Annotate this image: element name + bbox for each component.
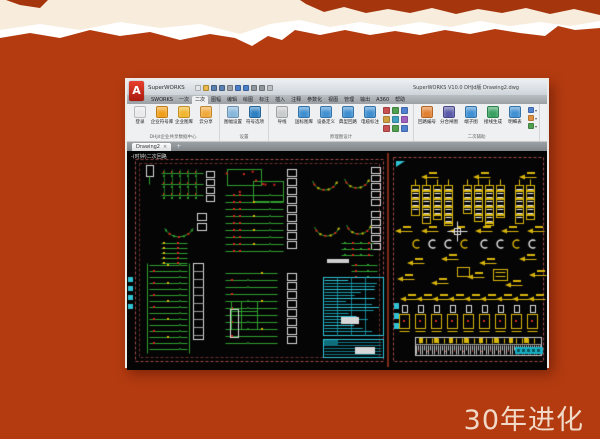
app-logo-button[interactable]: A [129, 81, 144, 101]
ribbon: 登录企业符号库企业图库云分享DHJd企业共享数据中心图幅设置符号选项设置导线国标… [127, 104, 547, 142]
mini-tool-grid [383, 107, 409, 133]
ribbon-button-电缆标注[interactable]: 电缆标注 [359, 105, 381, 125]
ribbon-tab-标注[interactable]: 标注 [256, 96, 272, 104]
ribbon-group-0: 登录企业符号库企业图库云分享DHJd企业共享数据中心 [127, 104, 220, 141]
wiring-icon [487, 106, 499, 118]
ribbon-button-企业符号库[interactable]: 企业符号库 [151, 105, 173, 125]
chevron-down-icon: ▾ [535, 108, 537, 113]
file-tab-bar: Drawing2 × + [127, 142, 547, 151]
chevron-down-icon: ▾ [535, 124, 537, 129]
new-file-icon[interactable] [195, 85, 201, 91]
ribbon-tab-视图[interactable]: 视图 [325, 96, 341, 104]
ribbon-button-label: 典型回路 [339, 119, 357, 125]
refresh-icon[interactable] [251, 85, 257, 91]
ribbon-button-label: 符号选项 [246, 119, 264, 125]
cable-tag-icon [364, 106, 376, 118]
ribbon-button-图幅设置[interactable]: 图幅设置 [222, 105, 244, 125]
device-grid-icon [320, 106, 332, 118]
copy-tool-icon[interactable] [392, 116, 399, 123]
mini-button-stack: ▾▾▾ [528, 107, 537, 129]
ribbon-button-label: 图幅设置 [224, 119, 242, 125]
ribbon-group-label: 设置 [222, 134, 266, 141]
ribbon-tab-row: SWORKS一次二次图幅编辑绘图标注插入注释参数化视图管理输出A360帮助 [127, 95, 547, 104]
check-mini-icon[interactable]: ▾ [528, 123, 537, 129]
export-mini-icon[interactable]: ▾ [528, 115, 537, 121]
ribbon-group-label: DHJd企业共享数据中心 [129, 134, 217, 141]
compass-icon [156, 106, 168, 118]
ribbon-button-label: 回路编号 [418, 119, 436, 125]
org-tree-icon [443, 106, 455, 118]
check-mini-icon [528, 123, 534, 129]
ribbon-button-导线[interactable]: 导线 [271, 105, 293, 125]
search-icon[interactable] [259, 85, 265, 91]
save-icon[interactable] [211, 85, 217, 91]
ribbon-button-label: 明细表 [508, 119, 522, 125]
ribbon-tab-绘图[interactable]: 绘图 [240, 96, 256, 104]
canvas-annotation: -(时钟)二次回路 [131, 153, 167, 160]
title-bar: A SuperWORKS SuperWORKS V10.0 DHJd版 Draw… [127, 80, 547, 95]
ribbon-button-label: 云分享 [199, 119, 213, 125]
file-tab-label: Drawing2 [136, 143, 160, 151]
align-tool-icon[interactable] [383, 116, 390, 123]
circuit-icon [342, 106, 354, 118]
ribbon-button-典型回路[interactable]: 典型回路 [337, 105, 359, 125]
folder-icon [178, 106, 190, 118]
ribbon-tab-帮助[interactable]: 帮助 [392, 96, 408, 104]
torn-paper-header [0, 0, 600, 80]
quick-access-toolbar [195, 85, 273, 91]
list-mini-icon[interactable]: ▾ [528, 107, 537, 113]
ribbon-button-分合闸图[interactable]: 分合闸图 [438, 105, 460, 125]
ribbon-tab-管理[interactable]: 管理 [341, 96, 357, 104]
cad-canvas[interactable] [127, 151, 547, 370]
ribbon-tab-二次[interactable]: 二次 [192, 96, 208, 104]
plot-icon[interactable] [227, 85, 233, 91]
ribbon-button-label: 企业符号库 [151, 119, 173, 125]
ribbon-button-接线生成[interactable]: 接线生成 [482, 105, 504, 125]
ribbon-tab-插入[interactable]: 插入 [272, 96, 288, 104]
ribbon-group-label: 二次辅助 [416, 134, 537, 141]
red-sheet-edge [0, 26, 600, 80]
ribbon-button-设备定义[interactable]: 设备定义 [315, 105, 337, 125]
ribbon-button-国标图库[interactable]: 国标图库 [293, 105, 315, 125]
redo-icon[interactable] [243, 85, 249, 91]
table-tool-icon[interactable] [392, 107, 399, 114]
ribbon-tab-一次[interactable]: 一次 [176, 96, 192, 104]
globe-icon [249, 106, 261, 118]
ribbon-button-label: 国标图库 [295, 119, 313, 125]
ribbon-button-符号选项[interactable]: 符号选项 [244, 105, 266, 125]
text-tool-icon[interactable] [383, 107, 390, 114]
ribbon-button-企业图库[interactable]: 企业图库 [173, 105, 195, 125]
ribbon-tab-SWORKS[interactable]: SWORKS [148, 96, 176, 104]
ribbon-group-1: 图幅设置符号选项设置 [220, 104, 269, 141]
ribbon-group-3: 回路编号分合闸图端子图接线生成明细表▾▾▾二次辅助 [414, 104, 540, 141]
app-window: A SuperWORKS SuperWORKS V10.0 DHJd版 Draw… [125, 78, 549, 368]
edit-tool-icon[interactable] [401, 107, 408, 114]
export-mini-icon [528, 115, 534, 121]
user-card-icon [134, 106, 146, 118]
close-icon[interactable]: × [163, 143, 167, 151]
polyline-icon [276, 106, 288, 118]
undo-icon[interactable] [235, 85, 241, 91]
dropdown-icon[interactable] [267, 85, 273, 91]
chevron-down-icon: ▾ [535, 116, 537, 121]
measure-tool-icon[interactable] [401, 125, 408, 132]
ribbon-tab-注释[interactable]: 注释 [288, 96, 304, 104]
layer-tool-icon[interactable] [383, 125, 390, 132]
slide-caption: 30年进化 [464, 398, 584, 437]
list-mini-icon [528, 107, 534, 113]
ribbon-button-明细表[interactable]: 明细表 [504, 105, 526, 125]
ribbon-button-label: 企业图库 [175, 119, 193, 125]
sheet-settings-icon [227, 106, 239, 118]
terminal-grid-icon [465, 106, 477, 118]
file-tab-drawing2[interactable]: Drawing2 × [132, 143, 171, 151]
save-as-icon[interactable] [219, 85, 225, 91]
window-title: SuperWORKS V10.0 DHJd版 Drawing2.dwg [413, 84, 519, 91]
ribbon-tab-输出[interactable]: 输出 [357, 96, 373, 104]
match-tool-icon[interactable] [392, 125, 399, 132]
ribbon-group-label: 原理图设计 [271, 134, 411, 141]
numbering-icon [421, 106, 433, 118]
app-name: SuperWORKS [148, 85, 185, 91]
new-tab-icon[interactable]: + [174, 143, 183, 151]
ribbon-button-label: 端子图 [464, 119, 478, 125]
ribbon-tab-参数化[interactable]: 参数化 [304, 96, 325, 104]
detail-table-icon [509, 106, 521, 118]
ribbon-button-label: 分合闸图 [440, 119, 458, 125]
ribbon-button-回路编号[interactable]: 回路编号 [416, 105, 438, 125]
pencil-box-icon [298, 106, 310, 118]
ribbon-tab-A360[interactable]: A360 [373, 96, 392, 104]
ribbon-button-label: 设备定义 [317, 119, 335, 125]
ribbon-button-登录[interactable]: 登录 [129, 105, 151, 125]
open-folder-icon[interactable] [203, 85, 209, 91]
drawing-area[interactable]: -(时钟)二次回路 [127, 151, 547, 370]
ribbon-tab-图幅[interactable]: 图幅 [208, 96, 224, 104]
ribbon-button-端子图[interactable]: 端子图 [460, 105, 482, 125]
ribbon-button-label: 接线生成 [484, 119, 502, 125]
ribbon-group-2: 导线国标图库设备定义典型回路电缆标注原理图设计 [269, 104, 414, 141]
ribbon-button-label: 导线 [278, 119, 287, 125]
ribbon-button-云分享[interactable]: 云分享 [195, 105, 217, 125]
ribbon-button-label: 电缆标注 [361, 119, 379, 125]
cloud-share-icon [200, 106, 212, 118]
ribbon-button-label: 登录 [136, 119, 145, 125]
erase-tool-icon[interactable] [401, 116, 408, 123]
ribbon-tab-编辑[interactable]: 编辑 [224, 96, 240, 104]
